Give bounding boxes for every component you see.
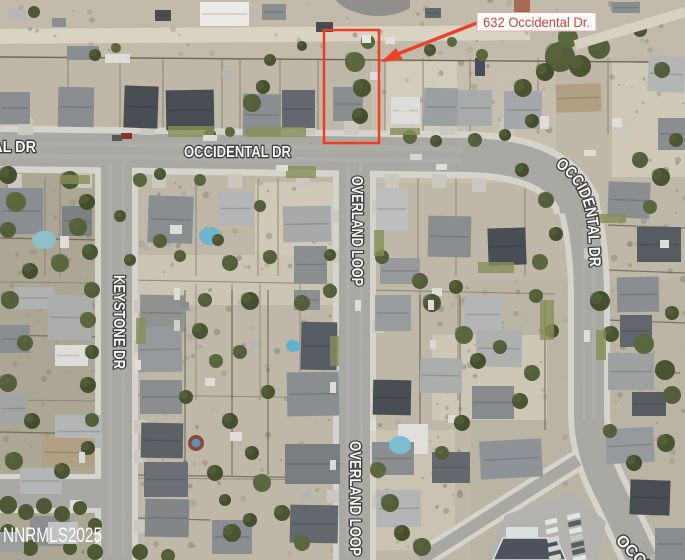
svg-text:OCCIDENTAL DR: OCCIDENTAL DR: [0, 139, 36, 156]
svg-text:OVERLAND LOOP: OVERLAND LOOP: [348, 176, 365, 286]
svg-text:KEYSTONE DR: KEYSTONE DR: [110, 275, 127, 369]
svg-text:632 Occidental Dr.: 632 Occidental Dr.: [483, 14, 590, 30]
svg-text:NNRMLS2025: NNRMLS2025: [3, 524, 102, 547]
svg-text:OVERLAND LOOP: OVERLAND LOOP: [346, 441, 363, 556]
svg-text:OCCIDENTAL DR: OCCIDENTAL DR: [184, 144, 291, 161]
